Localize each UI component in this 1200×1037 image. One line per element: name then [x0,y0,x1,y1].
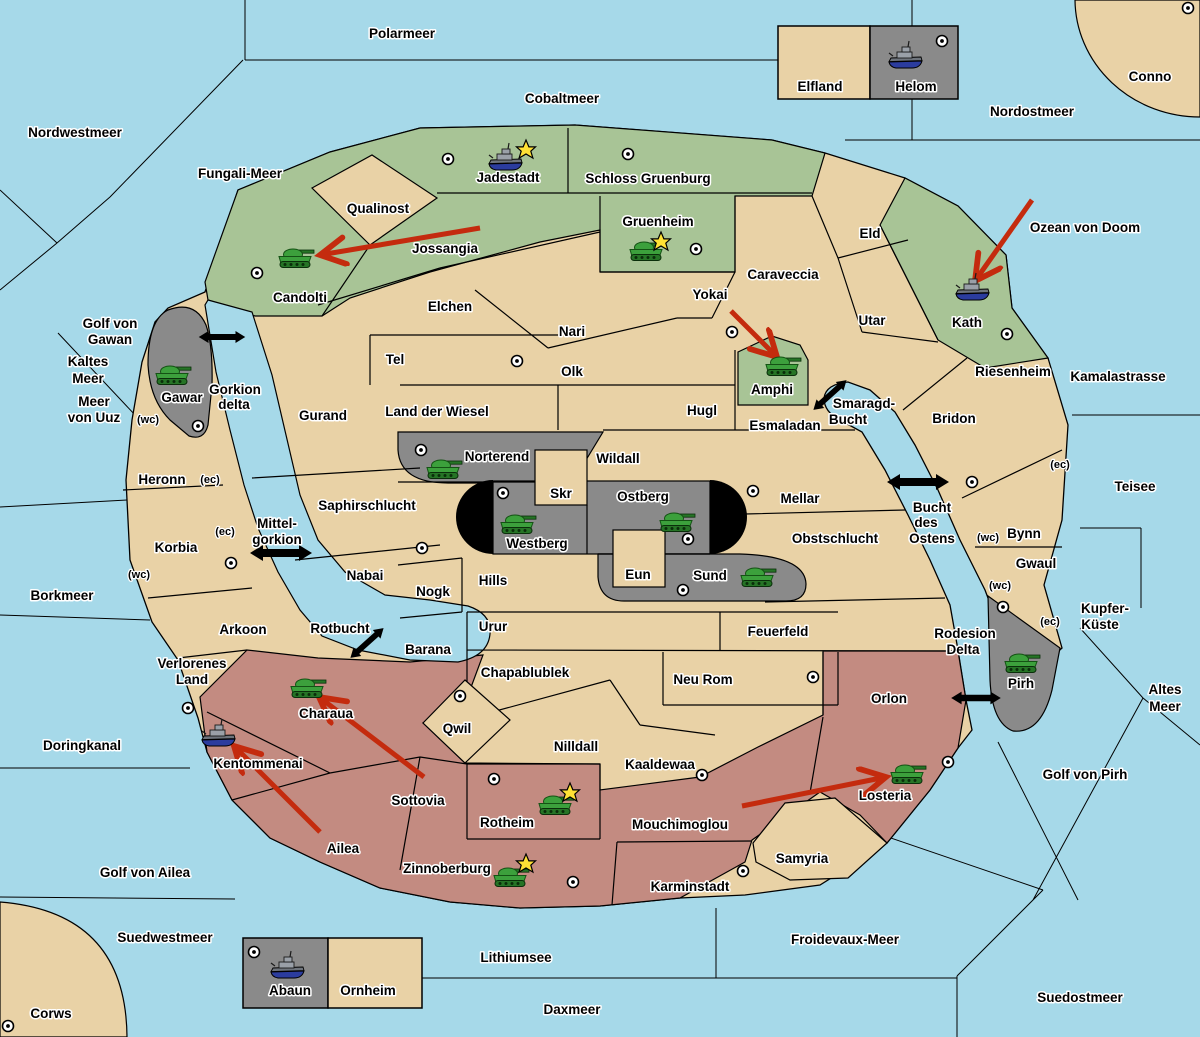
territory-label: Skr [550,486,573,501]
town-marker-icon [623,149,634,160]
game-map-stage: PolarmeerCobaltmeerNordostmeerConnoNordw… [0,0,1200,1037]
town-marker-icon [1002,329,1013,340]
sea-label: Gorkion [209,382,261,397]
sea-label: Kamalastrasse [1070,369,1166,384]
territory-label: Schloss Gruenburg [585,171,710,186]
town-marker-icon [226,558,237,569]
territory-label: Qwil [443,721,472,736]
territory-label: Westberg [506,536,567,551]
territory-label: Mellar [780,491,820,506]
sea-label: Suedwestmeer [117,930,213,945]
territory-label: Samyria [776,851,829,866]
territory-label: Nilldall [554,739,598,754]
sea-label: delta [218,397,250,412]
town-marker-icon [943,757,954,768]
sea-label: Corws [30,1006,71,1021]
sea-label: Teisee [1114,479,1156,494]
town-marker-icon [249,947,260,958]
territory-label: Norterend [465,449,530,464]
territory-label: Wildall [596,451,639,466]
town-marker-icon [697,770,708,781]
tank-unit-norterend-icon[interactable] [427,460,462,479]
territory-label: Losteria [859,788,912,803]
sea-label: Suedostmeer [1037,990,1123,1005]
town-marker-icon [678,585,689,596]
sea-label: gorkion [252,532,302,547]
territory-label: Nogk [416,584,450,599]
town-marker-icon [568,877,579,888]
sea-label: Conno [1129,69,1172,84]
sea-label: von Uuz [68,410,121,425]
territory-label: Gurand [299,408,347,423]
territory-label: Helom [895,79,936,94]
town-marker-icon [808,672,819,683]
sea-label: Meer [1149,699,1181,714]
territory-label: Tel [386,352,405,367]
territory-label: Saphirschlucht [318,498,416,513]
sea-label: Nordostmeer [990,104,1075,119]
territory-label: Gawar [161,390,203,405]
town-marker-icon [443,154,454,165]
territory-label: Jossangia [412,241,479,256]
territory-label: Pirh [1008,676,1034,691]
town-marker-icon [1183,3,1194,14]
territory-label: Eld [859,226,880,241]
territory-label: Neu Rom [673,672,732,687]
town-marker-icon [455,691,466,702]
sea-label: Bucht [829,412,868,427]
town-marker-icon [998,602,1009,613]
sea-label: Meer [78,394,110,409]
territory-label: Caraveccia [747,267,819,282]
coast-type-label: (ec) [200,474,220,486]
territory-label: Esmaladan [749,418,820,433]
sea-label: Golf von Pirh [1043,767,1128,782]
sea-label: des [914,515,937,530]
territory-label: Barana [405,642,451,657]
sea-label: Cobaltmeer [525,91,600,106]
territory-label: Yokai [692,287,727,302]
coast-type-label: (ec) [1050,459,1070,471]
town-marker-icon [3,1021,14,1032]
territory-label: Chapablublek [481,665,570,680]
coast-type-label: (wc) [977,532,999,544]
sea-label: Doringkanal [43,738,121,753]
territory-label: Elfland [797,79,842,94]
territory-label: Kath [952,315,982,330]
coast-type-label: (ec) [1040,616,1060,628]
territory-label: Land [176,672,208,687]
town-marker-icon [252,268,263,279]
territory-label: Kaaldewaa [625,757,695,772]
territory-label: Ailea [327,841,360,856]
territory-label: Hugl [687,403,717,418]
sea-label: Rodesion [934,626,996,641]
town-marker-icon [489,774,500,785]
territory-label: Candolti [273,290,327,305]
territory-label: Heronn [138,472,185,487]
territory-label: Bynn [1007,526,1041,541]
territory-label: Feuerfeld [748,624,809,639]
town-marker-icon [512,356,523,367]
coast-type-label: (wc) [989,580,1011,592]
town-marker-icon [691,244,702,255]
sea-label: Froidevaux-Meer [791,932,900,947]
territory-label: Ornheim [340,983,396,998]
territory-label: Riesenheim [975,364,1051,379]
town-marker-icon [498,488,509,499]
territory-label: Kentommenai [213,756,302,771]
town-marker-icon [183,703,194,714]
town-marker-icon [738,866,749,877]
sea-label: Ostens [909,531,955,546]
strategy-map: PolarmeerCobaltmeerNordostmeerConnoNordw… [0,0,1200,1037]
territory-label: Gruenheim [622,214,693,229]
sea-label: Smaragd- [833,396,895,411]
sea-label: Gawan [88,332,132,347]
territory-label: Urur [479,619,508,634]
sea-label: Delta [946,642,980,657]
sea-label: Altes [1148,682,1181,697]
sea-label: Borkmeer [30,588,94,603]
town-marker-icon [727,327,738,338]
territory-label: Mouchimoglou [632,817,728,832]
territory-label: Nari [559,324,585,339]
sea-label: Daxmeer [543,1002,601,1017]
territory-label: Utar [858,313,886,328]
territory-label: Karminstadt [651,879,730,894]
tank-unit-candolti-icon[interactable] [279,249,314,268]
tank-unit-gawar-icon[interactable] [156,366,191,385]
sea-label: Lithiumsee [480,950,552,965]
sea-label: Fungali-Meer [198,166,283,181]
territory-label: Charaua [299,706,354,721]
tank-unit-amphi-icon[interactable] [766,357,801,376]
sea-label: Bucht [913,500,952,515]
territory-label: Zinnoberburg [403,861,491,876]
sea-label: Ozean von Doom [1030,220,1140,235]
territory-label: Korbia [155,540,198,555]
town-marker-icon [683,534,694,545]
sea-label: Rotbucht [310,621,370,636]
tank-unit-sund-icon[interactable] [741,568,776,587]
sea-label: Polarmeer [369,26,436,41]
tank-unit-westberg-icon[interactable] [501,515,536,534]
territory-label: Elchen [428,299,472,314]
sea-label: Mittel- [257,516,297,531]
territory-label: Eun [625,567,651,582]
sea-label: Küste [1081,617,1119,632]
territory-label: Bridon [932,411,976,426]
tank-unit-rotheim-icon[interactable] [539,796,574,815]
town-marker-icon [937,36,948,47]
town-marker-icon [748,486,759,497]
territory-label: Gwaul [1016,556,1057,571]
sea-label: Kupfer- [1081,601,1129,616]
sea-label: Meer [72,371,104,386]
tank-unit-zinnoberburg-icon[interactable] [494,868,529,887]
territory-label: Obstschlucht [792,531,879,546]
territory-label: Rotheim [480,815,534,830]
town-marker-icon [417,543,428,554]
town-marker-icon [967,477,978,488]
coast-type-label: (ec) [215,526,235,538]
territory-label: Amphi [751,382,793,397]
territory-label: Arkoon [219,622,266,637]
town-marker-icon [193,421,204,432]
territory-label: Orlon [871,691,907,706]
territory-label: Hills [479,573,508,588]
tank-unit-losteria-icon[interactable] [891,765,926,784]
tank-unit-ostberg-icon[interactable] [660,513,695,532]
territory-label: Verlorenes [157,656,226,671]
territory-label: Ostberg [617,489,669,504]
territory-label: Olk [561,364,583,379]
town-marker-icon [416,445,427,456]
territory-label: Nabai [347,568,384,583]
territory-label: Qualinost [347,201,410,216]
tank-unit-pirh-icon[interactable] [1005,654,1040,673]
territory-label: Sottovia [391,793,445,808]
sea-label: Kaltes [68,354,109,369]
sea-label: Golf von Ailea [100,865,191,880]
tank-unit-charaua-icon[interactable] [291,679,326,698]
sea-label: Nordwestmeer [28,125,123,140]
sea-label: Golf von [83,316,138,331]
coast-type-label: (wc) [137,414,159,426]
territory-label: Sund [693,568,727,583]
territory-label: Land der Wiesel [385,404,488,419]
territory-label: Jadestadt [476,170,540,185]
coast-type-label: (wc) [128,569,150,581]
territory-label: Abaun [269,983,311,998]
